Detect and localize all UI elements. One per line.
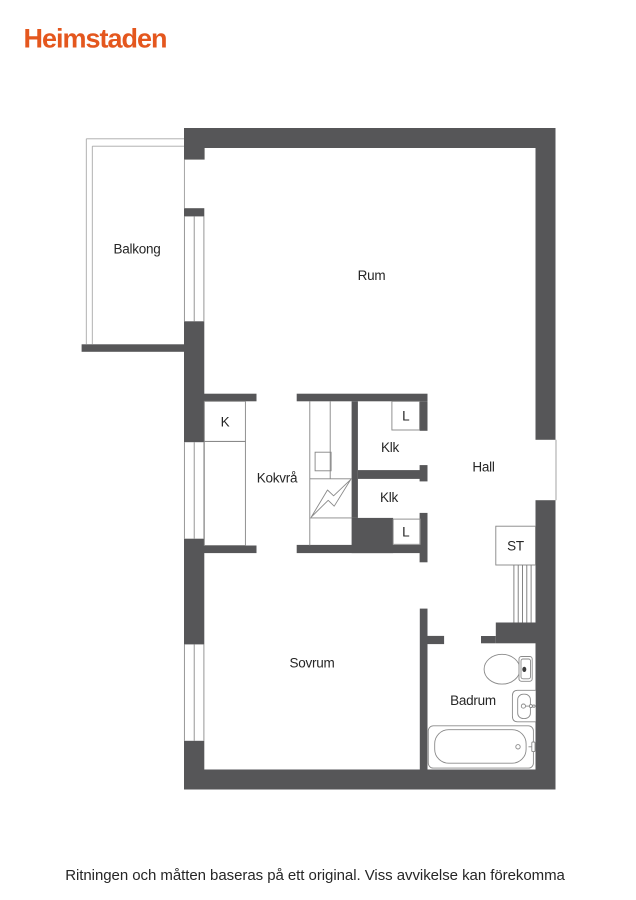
svg-text:Badrum: Badrum: [450, 693, 496, 708]
svg-text:L: L: [402, 408, 410, 423]
svg-text:Ritningen och måtten baseras p: Ritningen och måtten baseras på ett orig…: [65, 867, 565, 884]
svg-text:Hall: Hall: [472, 460, 495, 475]
svg-text:Balkong: Balkong: [113, 241, 160, 256]
svg-text:Rum: Rum: [358, 268, 386, 283]
svg-text:Sovrum: Sovrum: [289, 656, 334, 671]
svg-text:L: L: [402, 524, 410, 539]
svg-text:Kokvrå: Kokvrå: [257, 470, 298, 485]
svg-text:Klk: Klk: [381, 440, 400, 455]
svg-text:ST: ST: [507, 539, 524, 554]
svg-text:Heimstaden: Heimstaden: [24, 23, 167, 53]
svg-text:Klk: Klk: [380, 490, 399, 505]
svg-text:K: K: [221, 415, 230, 430]
